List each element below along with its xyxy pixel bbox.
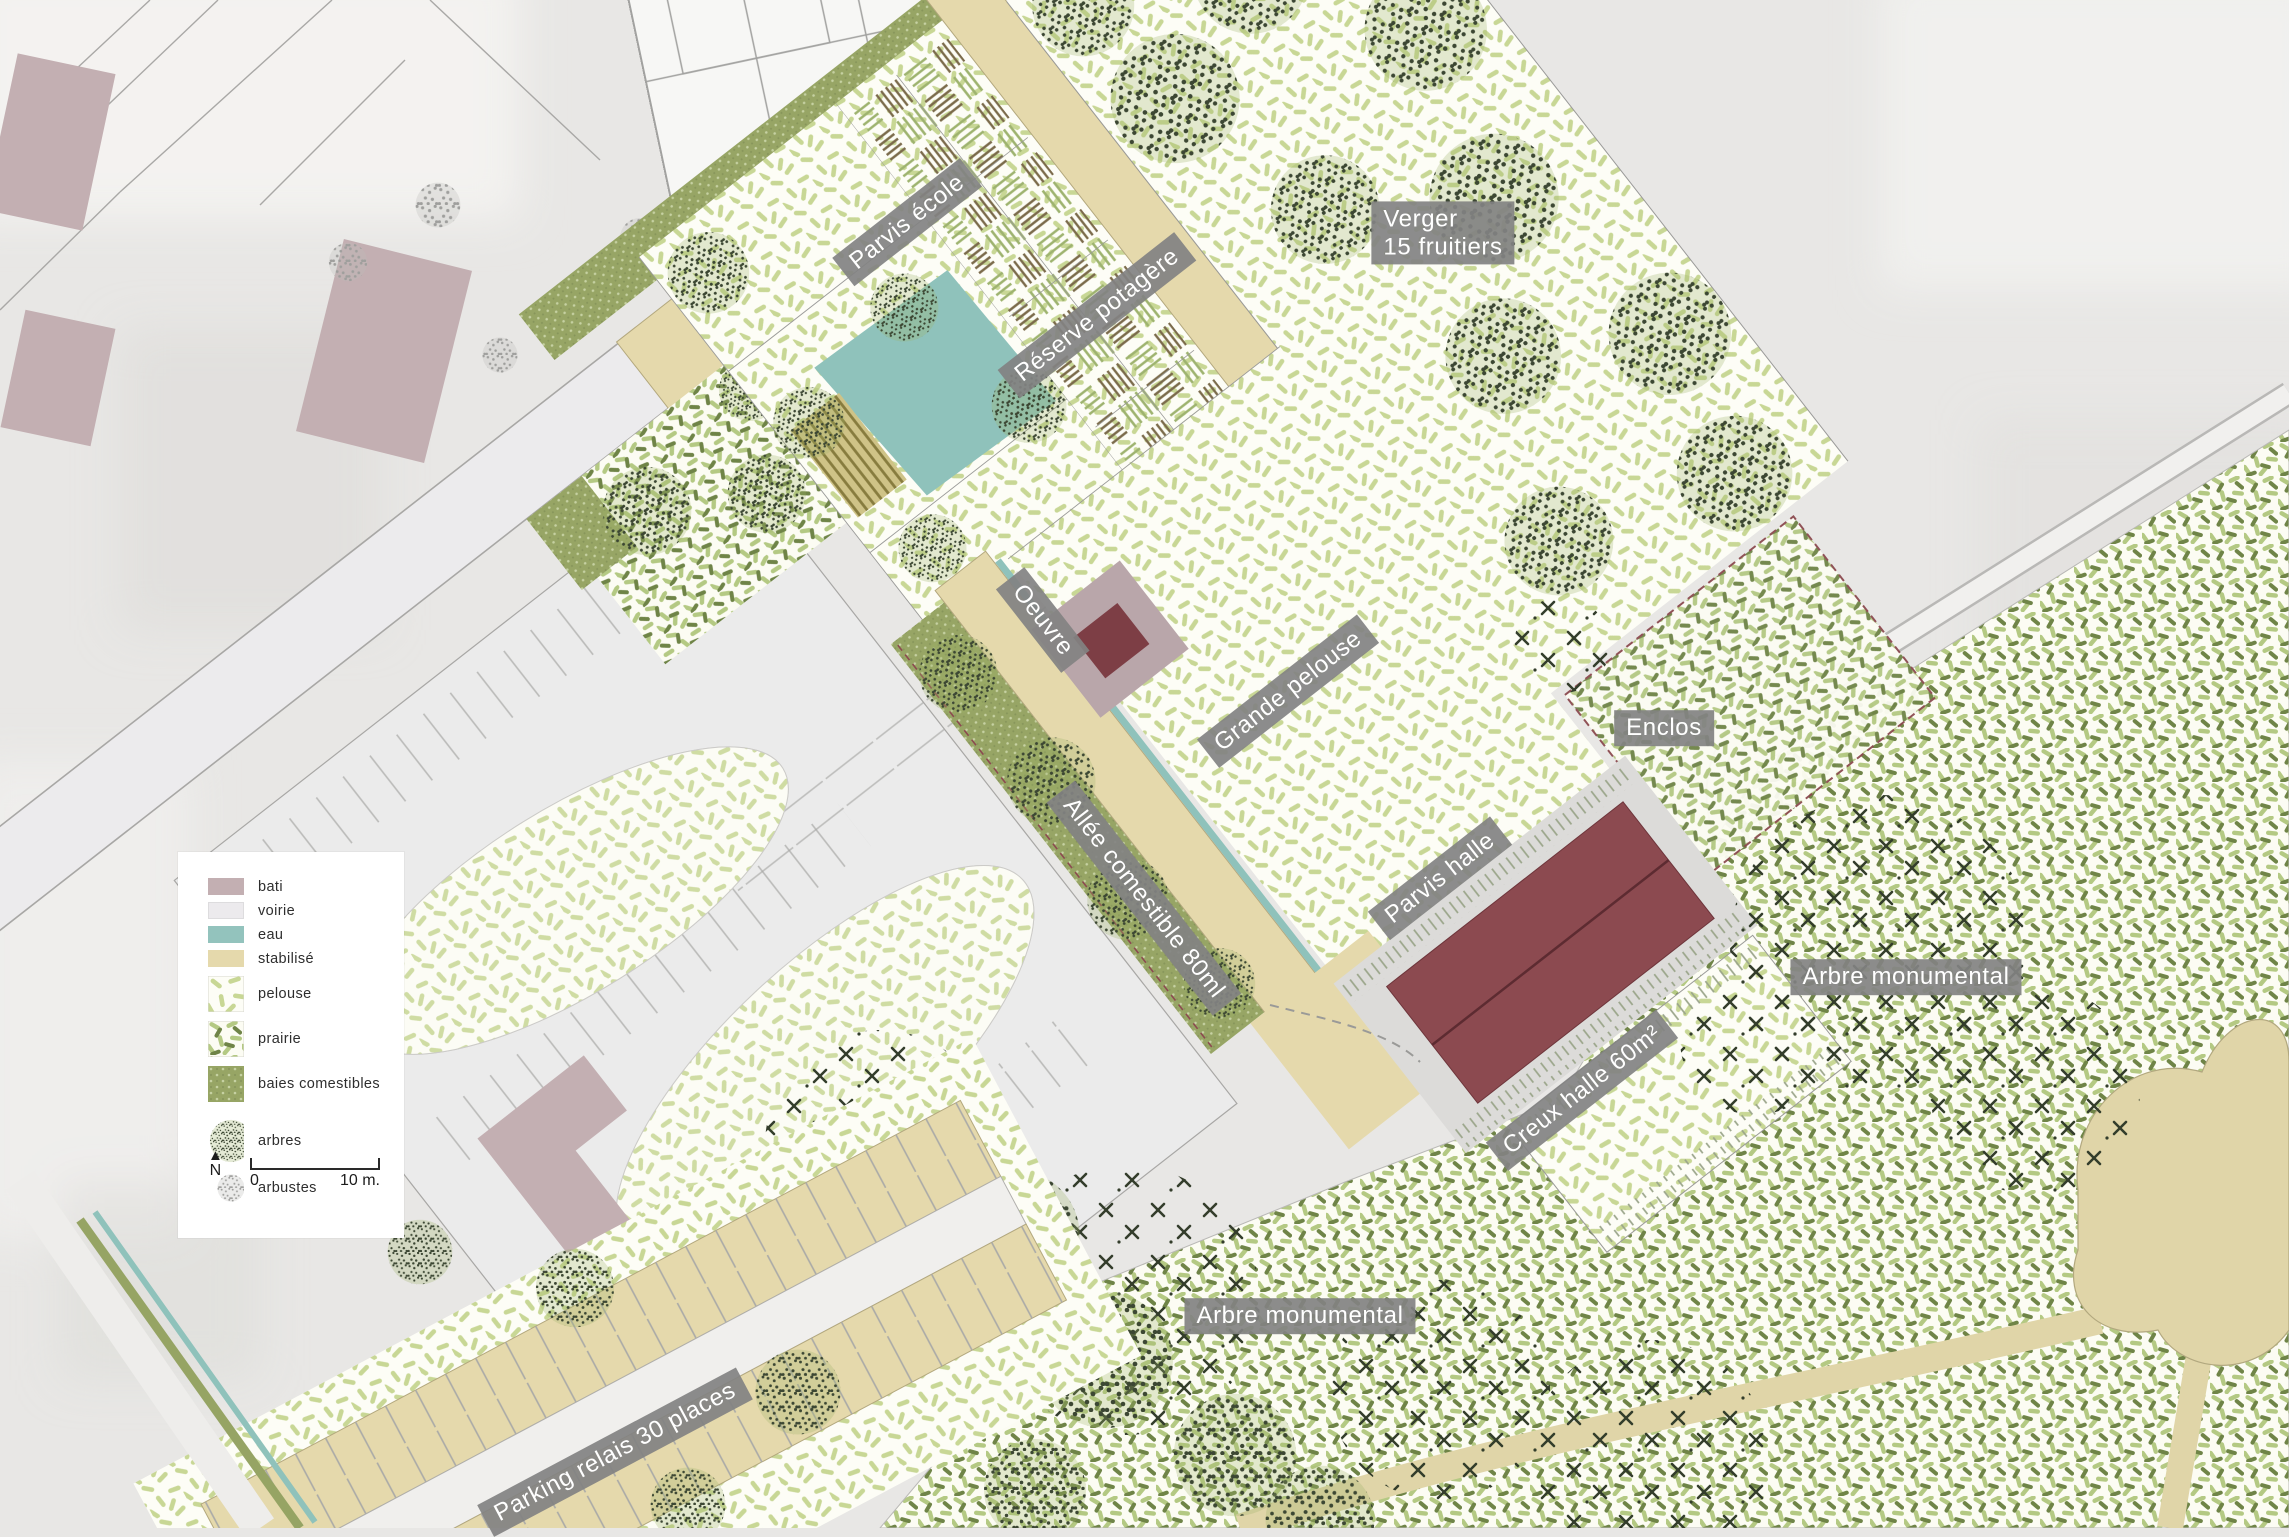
legend-label: baies comestibles: [258, 1076, 380, 1092]
legend-label: voirie: [258, 903, 295, 919]
scale-bar: 0 10 m.: [250, 1158, 380, 1190]
bati-swatch: [208, 878, 244, 895]
legend-item-pelouse: pelouse: [208, 976, 404, 1012]
site-plan-basemap: [0, 0, 2289, 1528]
north-arrow-icon: ▲: [208, 1150, 223, 1162]
legend-label: pelouse: [258, 986, 312, 1002]
voirie-swatch: [208, 902, 244, 919]
scale-start: 0: [250, 1172, 259, 1190]
site-plan-page: { "labels": { "parvis_ecole": "Parvis éc…: [0, 0, 2289, 1528]
legend-item-stabilise: stabilisé: [208, 950, 404, 967]
legend-item-prairie: prairie: [208, 1021, 404, 1057]
legend-item-voirie: voirie: [208, 902, 404, 919]
scale-end: 10 m.: [340, 1172, 380, 1190]
legend-label: bati: [258, 879, 283, 895]
legend-label: eau: [258, 927, 283, 943]
legend-label: arbres: [258, 1133, 302, 1149]
legend-item-bati: bati: [208, 878, 404, 895]
legend-label: prairie: [258, 1031, 301, 1047]
scale-bar-line: [250, 1158, 380, 1170]
stabilise-swatch: [208, 950, 244, 967]
pelouse-swatch: [208, 976, 244, 1012]
north-arrow: ▲ N: [208, 1150, 223, 1180]
legend-item-baies: baies comestibles: [208, 1066, 404, 1102]
prairie-swatch: [208, 1021, 244, 1057]
eau-swatch: [208, 926, 244, 943]
legend-item-eau: eau: [208, 926, 404, 943]
baies-swatch: [208, 1066, 244, 1102]
legend-label: stabilisé: [258, 951, 314, 967]
north-label: N: [210, 1162, 222, 1179]
